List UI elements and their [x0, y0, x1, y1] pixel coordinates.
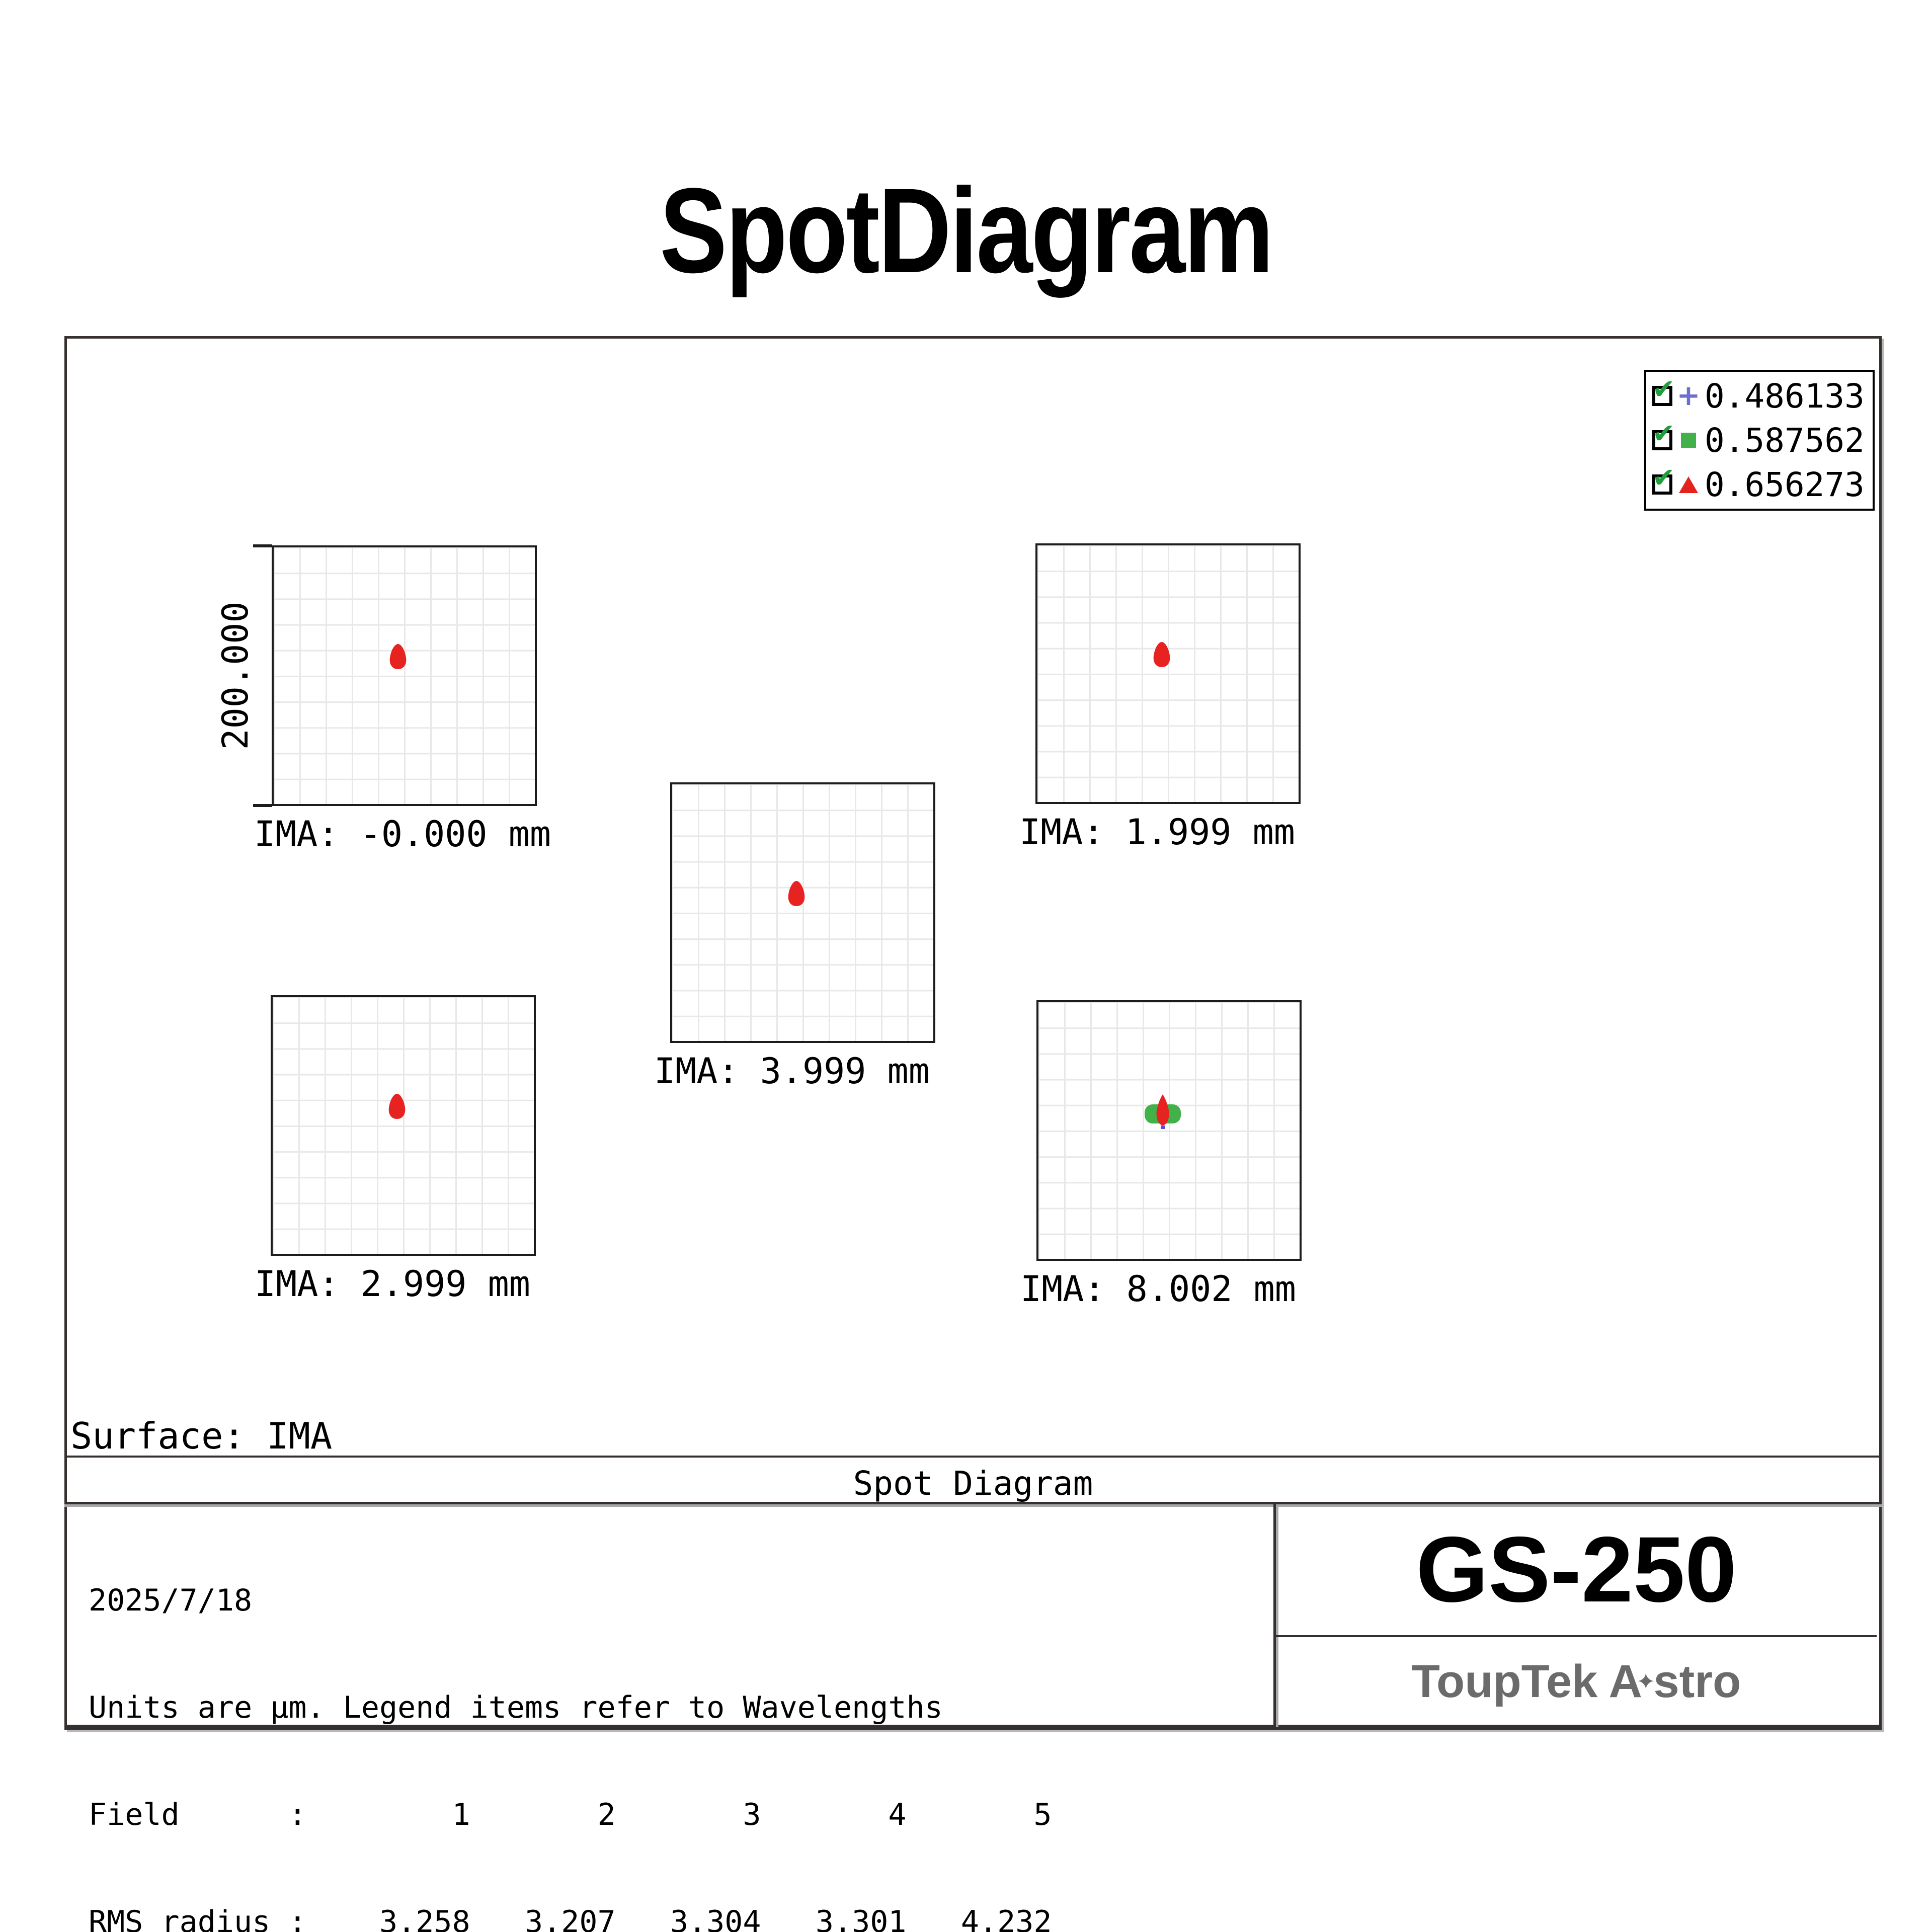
spot-blob-red	[785, 879, 808, 908]
table-info-block: 2025/7/18 Units are µm. Legend items ref…	[89, 1511, 1052, 1932]
table-heading: Spot Diagram	[64, 1464, 1882, 1503]
legend-checkbox[interactable]: ✔	[1652, 474, 1672, 495]
spot-red-blob	[1156, 1094, 1169, 1125]
legend-row-wavelength-1: ✔ + 0.486133	[1652, 375, 1871, 417]
legend-checkbox[interactable]: ✔	[1652, 430, 1672, 450]
table-date: 2025/7/18	[89, 1583, 1052, 1619]
spot-cluster-multicolor	[1142, 1092, 1184, 1131]
spot-panel-field-4	[670, 782, 935, 1043]
spot-blob-red	[1151, 640, 1173, 669]
table-top-divider	[64, 1456, 1882, 1458]
logo-text-right: stro	[1653, 1655, 1741, 1708]
table-rms-row: RMS radius : 3.258 3.207 3.304 3.301 4.2…	[89, 1904, 1052, 1932]
ima-label-field-5: IMA: 8.002 mm	[1020, 1269, 1296, 1310]
touptek-astro-logo: ToupTek A✦stro	[1276, 1637, 1877, 1726]
legend-wavelength-label: 0.656273	[1705, 465, 1865, 504]
legend-wavelength-label: 0.486133	[1705, 377, 1865, 416]
model-label: GS-250	[1276, 1504, 1877, 1635]
wavelength-legend: ✔ + 0.486133 ✔ 0.587562 ✔ 0.656273	[1644, 370, 1875, 511]
spot-panel-field-1	[272, 545, 537, 806]
surface-label: Surface: IMA	[70, 1415, 332, 1457]
check-icon: ✔	[1652, 376, 1675, 403]
ima-label-field-4: IMA: 3.999 mm	[654, 1051, 930, 1092]
axis-scale-label: 200.000	[215, 601, 256, 750]
spot-panel-field-5	[1036, 1000, 1302, 1261]
ima-label-field-2: IMA: 1.999 mm	[1019, 812, 1295, 853]
logo-text-left: ToupTek A	[1412, 1655, 1642, 1708]
table-field-row: Field : 1 2 3 4 5	[89, 1797, 1052, 1833]
legend-wavelength-label: 0.587562	[1705, 421, 1865, 460]
axis-tick-top	[253, 544, 272, 547]
check-icon: ✔	[1652, 464, 1675, 492]
check-icon: ✔	[1652, 420, 1675, 447]
spot-panel-field-3	[271, 995, 536, 1256]
star-icon: ✦	[1636, 1668, 1656, 1695]
ima-label-field-1: IMA: -0.000 mm	[254, 814, 551, 855]
table-units-note: Units are µm. Legend items refer to Wave…	[89, 1690, 1052, 1726]
spot-blob-red	[387, 642, 409, 671]
spot-blob-red	[386, 1092, 408, 1120]
legend-row-wavelength-2: ✔ 0.587562	[1652, 419, 1871, 461]
plus-marker-icon: +	[1676, 382, 1701, 410]
legend-checkbox[interactable]: ✔	[1652, 386, 1672, 406]
spot-panel-field-2	[1035, 543, 1301, 804]
axis-tick-bottom	[253, 804, 272, 807]
triangle-marker-icon	[1676, 476, 1701, 493]
page-title: SpotDiagram	[0, 170, 1932, 291]
page-title-text: SpotDiagram	[660, 170, 1272, 291]
spot-blue-dot	[1161, 1125, 1165, 1129]
spot-diagram-page: SpotDiagram ✔ + 0.486133 ✔ 0.587562 ✔ 0.…	[0, 0, 1932, 1932]
legend-row-wavelength-3: ✔ 0.656273	[1652, 463, 1871, 506]
square-marker-icon	[1676, 433, 1701, 448]
ima-label-field-3: IMA: 2.999 mm	[255, 1264, 530, 1305]
